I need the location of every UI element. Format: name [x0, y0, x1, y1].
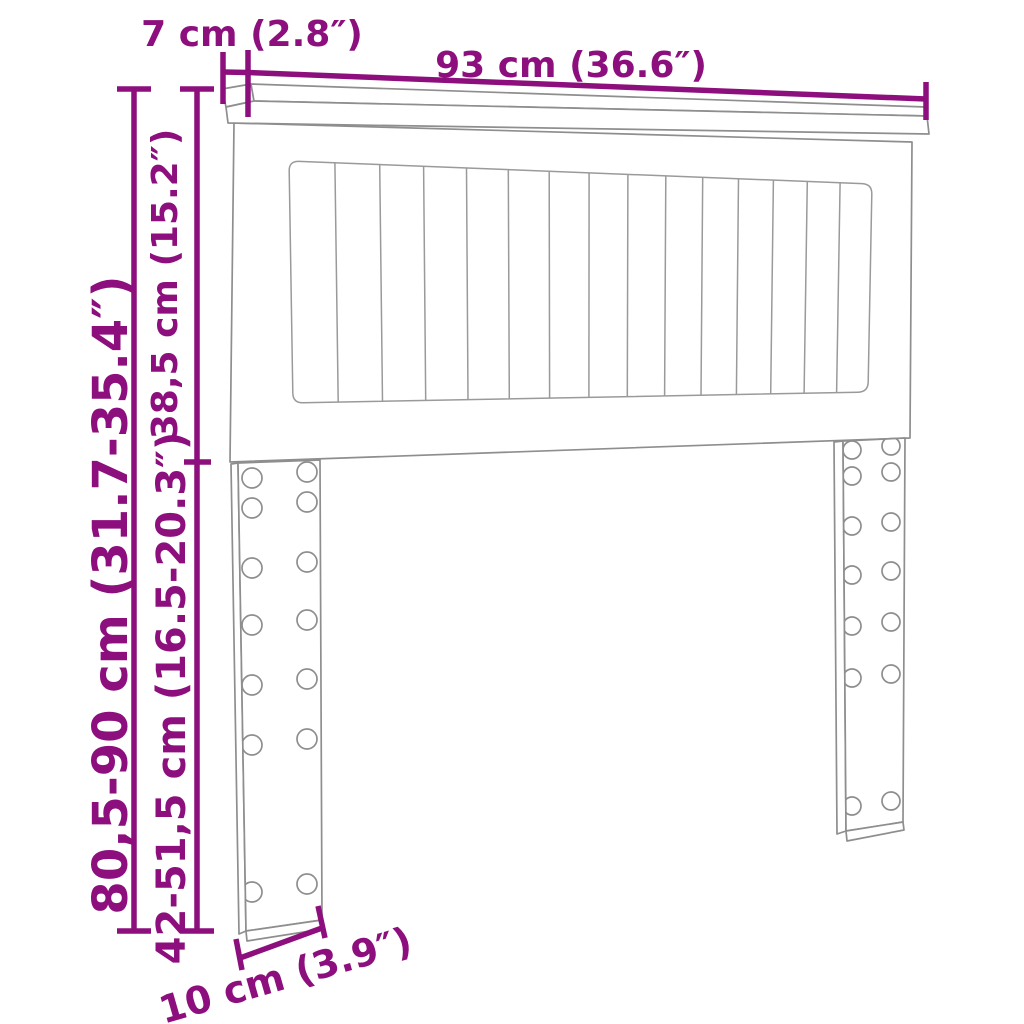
slat-field: [289, 161, 872, 402]
slat-field-outline: [289, 161, 872, 402]
dimension-diagram: 7 cm (2.8″) 93 cm (36.6″) 38,5 cm (15.2″…: [0, 0, 1024, 1024]
label-panel-height: 38,5 cm (15.2″): [145, 129, 186, 440]
label-width: 93 cm (36.6″): [435, 45, 707, 86]
label-top-depth: 7 cm (2.8″): [141, 14, 363, 55]
headboard-diagram-canvas: 7 cm (2.8″) 93 cm (36.6″) 38,5 cm (15.2″…: [0, 0, 1024, 1024]
right-leg: [834, 437, 905, 841]
left-leg: [231, 460, 323, 941]
label-leg-height: 42-51,5 cm (16.5-20.3″): [149, 432, 195, 965]
slat-line: [508, 170, 509, 399]
leg-width-right-tick: [318, 906, 325, 938]
label-total-height: 80,5-90 cm (31.7-35.4″): [83, 275, 139, 914]
slat-line: [627, 174, 628, 396]
headboard-drawing: [222, 84, 929, 941]
